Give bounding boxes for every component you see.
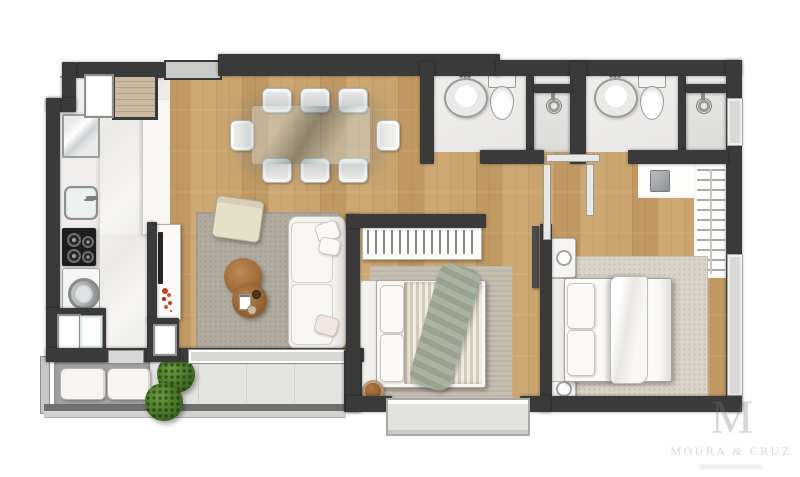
bathroom-2-shower-head xyxy=(696,98,712,114)
dining-chair-right xyxy=(376,120,400,151)
watermark-tagline-illegible xyxy=(700,465,762,469)
wall-bedroom-1-top xyxy=(346,214,486,228)
watermark-brand: MOURA & CRUZ xyxy=(656,444,800,459)
nightstand-top-knob xyxy=(556,250,572,266)
bedroom-1-door-leaf xyxy=(532,226,539,288)
armchair xyxy=(211,195,264,243)
living-bottom-window xyxy=(153,324,177,356)
wall-bathroom-2-bottom xyxy=(628,150,728,164)
wall-bedroom-separator xyxy=(540,224,552,412)
wall-bedroom-1-left xyxy=(346,214,360,412)
laundry-drawer-cabinet xyxy=(79,315,103,349)
coffee-table-cup-light xyxy=(247,305,257,315)
bed-2-pillow-top xyxy=(567,283,595,329)
bathroom-2-shower-screen xyxy=(686,84,726,93)
balcony-rail-bottom-light xyxy=(44,411,346,418)
floor-plan: M MOURA & CRUZ xyxy=(0,0,800,477)
dining-table-glass xyxy=(252,106,370,164)
bathroom-2-sink xyxy=(594,78,638,118)
utility-shaft-niche xyxy=(112,74,158,120)
cooktop-burner-1 xyxy=(67,233,81,247)
entry-door xyxy=(164,60,222,80)
bedroom-2-door-leaf xyxy=(543,164,551,240)
wall-bathroom-2-partition xyxy=(678,76,686,152)
wall-kitchen-living-divider xyxy=(147,222,157,322)
wall-bathrooms-divider xyxy=(570,62,586,164)
wall-top-living xyxy=(218,54,500,76)
service-area-window xyxy=(57,314,81,352)
balcony-bench-cushion-1 xyxy=(60,368,106,400)
bathroom-1-shower-screen xyxy=(534,84,572,93)
wall-bathroom-1-partition xyxy=(526,76,534,152)
bathroom-2-door-leaf xyxy=(586,164,594,216)
bed-1-pillow-bottom xyxy=(380,334,404,382)
cooktop-burner-3 xyxy=(67,249,81,263)
balcony-bench-cushion-2 xyxy=(107,368,151,400)
washing-machine-door xyxy=(68,278,100,310)
kitchen-top-window xyxy=(84,74,114,118)
watermark-monogram: M xyxy=(706,392,758,444)
living-balcony-sliding-door xyxy=(188,349,348,364)
wall-bathroom-1-bottom xyxy=(480,150,544,164)
kitchen-balcony-door xyxy=(108,350,144,364)
bedroom-2-window xyxy=(727,254,743,396)
plant-bush-2 xyxy=(145,383,183,421)
kitchen-sink xyxy=(64,186,98,220)
bedroom-1-window-sill xyxy=(386,398,530,436)
bedroom-1-wardrobe-hangers xyxy=(367,230,475,254)
wall-bathroom-1-left xyxy=(420,62,434,164)
safe-box xyxy=(650,170,670,192)
sofa-seat-cushion-2 xyxy=(291,284,333,345)
cooktop-burner-4 xyxy=(82,251,94,263)
tv-panel xyxy=(158,232,163,284)
dining-chair-left xyxy=(230,120,254,151)
bathroom-1-shower-head xyxy=(546,98,562,114)
kitchen-peninsula-counter xyxy=(143,100,170,234)
wall-left xyxy=(46,98,60,310)
bed-2-pillow-bottom xyxy=(567,330,595,376)
bed-2-folded-blanket xyxy=(610,276,648,384)
refrigerator xyxy=(62,114,100,158)
bathroom-2-window xyxy=(727,98,743,146)
red-flowers xyxy=(162,288,168,294)
kitchen-faucet xyxy=(86,196,98,200)
bathroom-1-sink xyxy=(444,78,488,118)
bathroom-1-door-leaf xyxy=(546,154,600,162)
nightstand-bottom-knob xyxy=(556,381,572,397)
balcony-rail-bottom-dark xyxy=(44,404,346,411)
coffee-table-cup-dark xyxy=(252,290,261,299)
cooktop-burner-2 xyxy=(82,236,94,248)
wall-top-bathrooms xyxy=(496,60,742,76)
bed-1-pillow-top xyxy=(380,285,404,333)
